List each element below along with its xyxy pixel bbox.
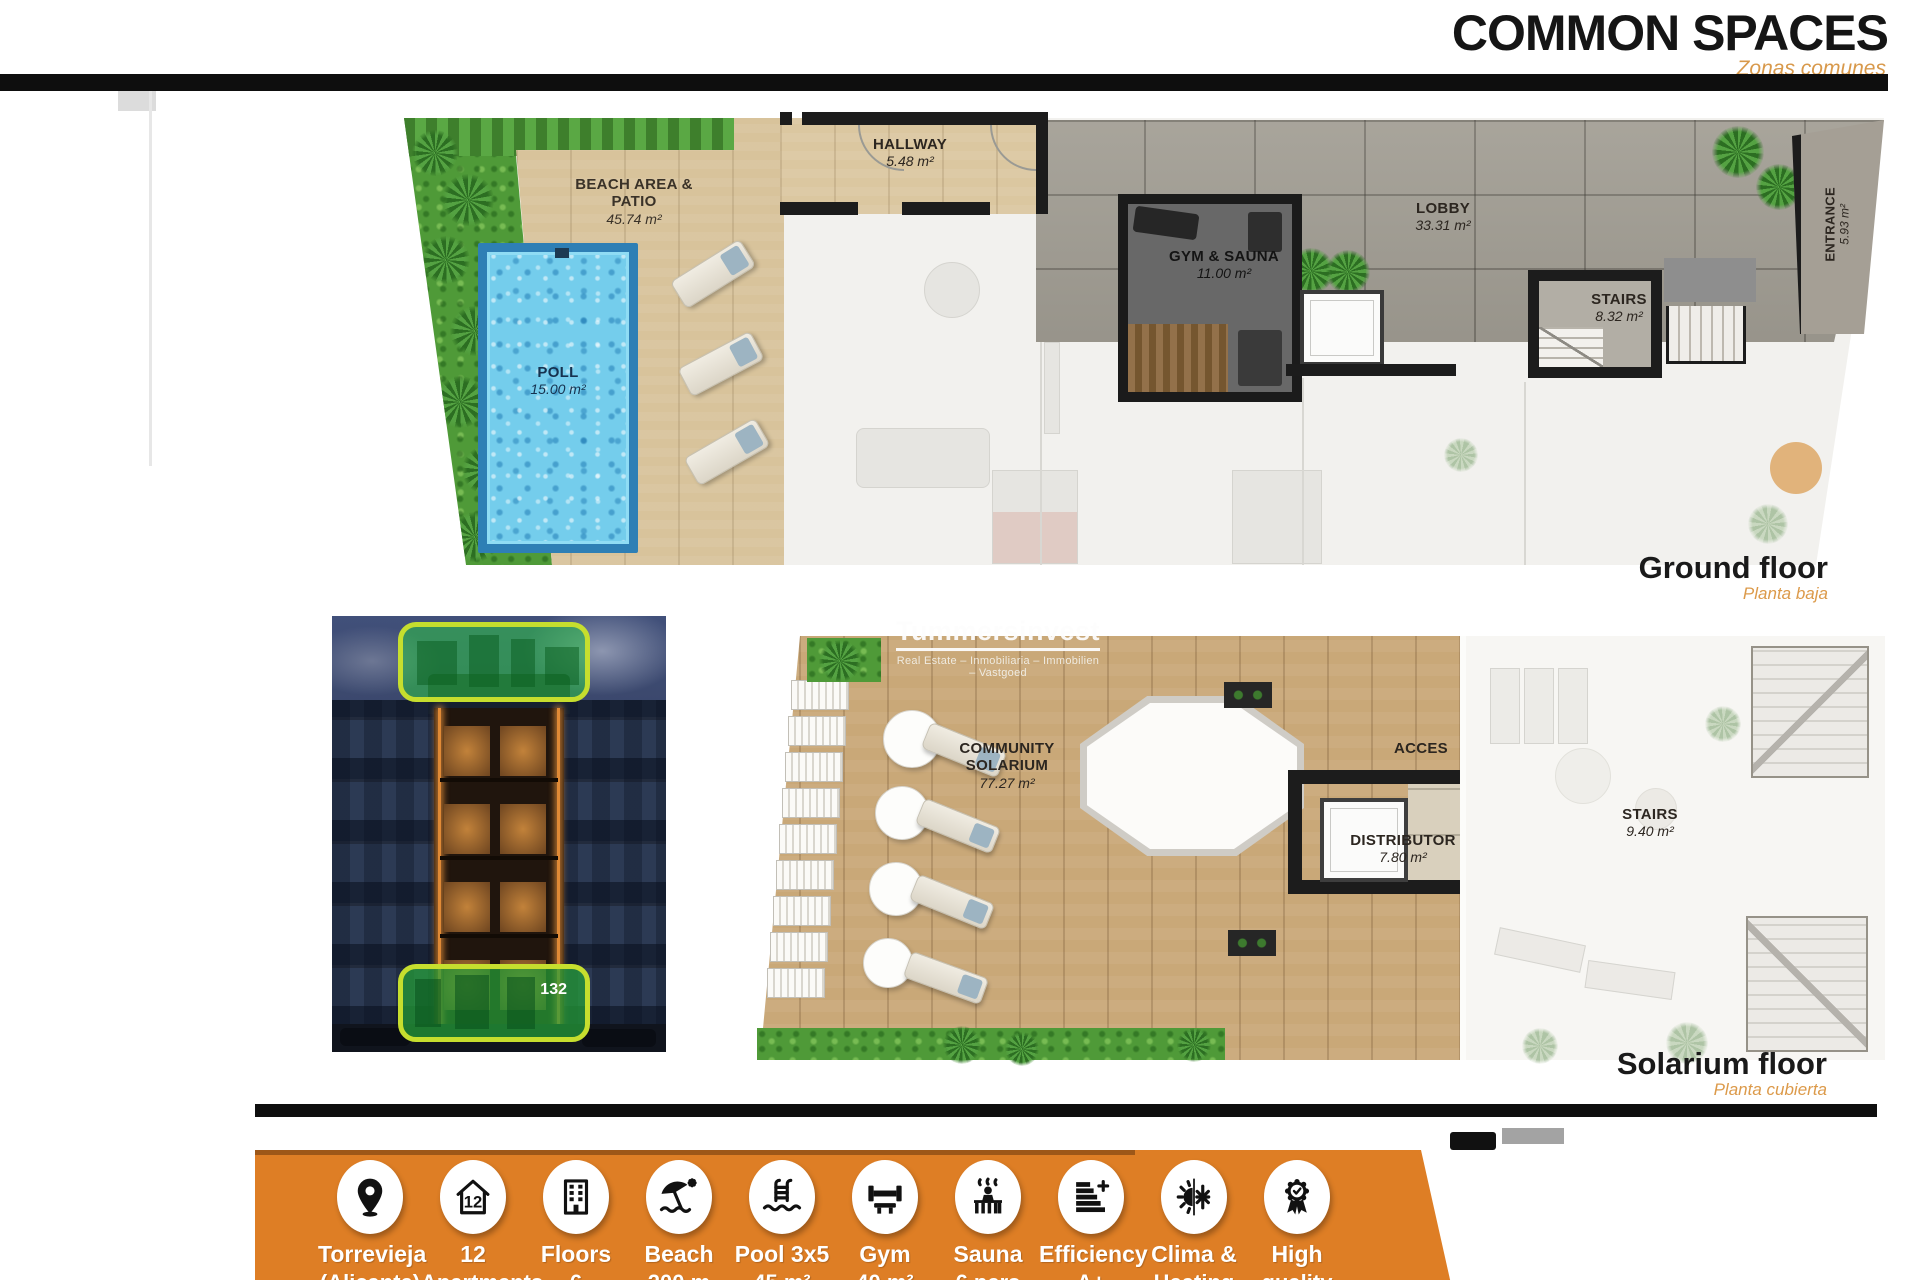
feature-line1: Efficiency (1039, 1241, 1143, 1268)
faded-lounger (1494, 927, 1586, 973)
room-area-lobby: 33.31 m² (1373, 217, 1513, 233)
swimming-pool: POLL 15.00 m² (478, 243, 638, 553)
feature-line2: A+ (1039, 1270, 1143, 1280)
feature-sauna: Sauna 6 pers (936, 1160, 1040, 1280)
ground-highlight-box: 132 (398, 964, 590, 1042)
room-area-beach: 45.74 m² (554, 211, 714, 227)
planter-box (1228, 930, 1276, 956)
location-pin-icon (337, 1160, 403, 1234)
slatted-lounger (788, 716, 846, 746)
highlight-silhouette (415, 979, 441, 1027)
slatted-lounger (791, 680, 849, 710)
feature-line1: Clima & (1142, 1241, 1246, 1268)
feature-gym: Gym 40 m² (833, 1160, 937, 1280)
lit-window (444, 882, 490, 932)
feature-line1: Sauna (936, 1241, 1040, 1268)
solarium-floor-plan: COMMUNITY SOLARIUM 77.27 m² ACCES DISTRI… (755, 628, 1888, 1068)
ground-floor-caption-es: Planta baja (1639, 583, 1828, 605)
skylight-glass (1087, 703, 1297, 849)
palm-plant (442, 174, 494, 226)
room-area-pool: 15.00 m² (487, 381, 629, 397)
feature-line1: 12 (421, 1241, 525, 1268)
faded-plant (1444, 438, 1478, 472)
floors-icon (543, 1160, 609, 1234)
room-name-beach: BEACH AREA & PATIO (554, 176, 714, 211)
watermark: Tummersinvest Real Estate – Inmobiliaria… (893, 616, 1103, 679)
lit-window (500, 804, 546, 854)
room-name-stairs-g: STAIRS (1569, 291, 1669, 308)
room-name-stairs-s: STAIRS (1595, 806, 1705, 823)
plant (1177, 1028, 1211, 1062)
feature-quality: High quality (1245, 1160, 1349, 1280)
bar-top-edge (255, 1150, 1135, 1155)
feature-line2: quality (1245, 1270, 1349, 1280)
feature-line2: Apartments (421, 1270, 525, 1280)
cropped-graphic (1450, 1132, 1496, 1150)
bed-blanket (993, 512, 1077, 563)
elevator (1300, 290, 1384, 366)
faded-plant (1705, 706, 1741, 742)
room-name-gym: GYM & SAUNA (1154, 248, 1294, 265)
room-name-entrance: ENTRANCE (1824, 144, 1839, 304)
header-rule (0, 74, 1888, 91)
plant (1005, 1032, 1039, 1066)
room-area-hallway: 5.48 m² (840, 153, 980, 169)
grass-strip (757, 1028, 1225, 1060)
pool-ladder (555, 248, 569, 258)
feature-line2: 6 (524, 1270, 628, 1280)
lit-window (500, 726, 546, 776)
faded-umbrella (1555, 748, 1611, 804)
balcony-slab (440, 934, 558, 938)
faded-table (924, 262, 980, 318)
stairs-room: STAIRS 8.32 m² (1528, 270, 1662, 378)
wall (1288, 770, 1302, 894)
gym-equipment (1238, 330, 1282, 386)
feature-line2: 6 pers (936, 1270, 1040, 1280)
faded-bed (992, 470, 1078, 564)
lit-window (500, 882, 546, 932)
feature-line1: Torrevieja (318, 1241, 422, 1268)
wall (780, 202, 858, 215)
entrance-area: ENTRANCE 5.93 m² (1792, 120, 1884, 334)
street-number-badge: 132 (540, 981, 567, 999)
umbrella (863, 938, 913, 988)
solarium-floor-caption-es: Planta cubierta (1617, 1079, 1827, 1101)
feature-line2: 200 m (627, 1270, 731, 1280)
watermark-tagline: Real Estate – Inmobiliaria – Immobilien … (893, 655, 1103, 679)
quality-icon (1264, 1160, 1330, 1234)
building-photo: 132 (332, 616, 666, 1052)
room-area-entrance: 5.93 m² (1839, 144, 1853, 304)
faded-wardrobe (1044, 342, 1060, 434)
stair-treads (1666, 306, 1746, 364)
highlight-silhouette (507, 977, 535, 1029)
lit-window (444, 804, 490, 854)
room-area-solarium: 77.27 m² (927, 775, 1087, 791)
wall (1286, 364, 1456, 376)
room-name-pool: POLL (487, 364, 629, 381)
feature-line1: Beach (627, 1241, 731, 1268)
feature-line2: Heating (1142, 1270, 1246, 1280)
feature-line2: (Alicante) (318, 1270, 422, 1280)
solarium-floor-caption: Solarium floor Planta cubierta (1617, 1048, 1827, 1101)
feature-location: Torrevieja (Alicante) (318, 1160, 422, 1280)
faded-lounger (1584, 960, 1675, 1000)
stair-treads (1539, 327, 1603, 367)
feature-efficiency: Efficiency A+ (1039, 1160, 1143, 1280)
wall (1036, 112, 1048, 214)
balcony-slab (440, 856, 558, 860)
room-name-solarium-1: COMMUNITY (927, 740, 1087, 757)
faded-stairs (1746, 916, 1868, 1052)
faded-wall-line (1302, 378, 1304, 565)
highlight-silhouette (455, 975, 489, 1029)
plant (819, 640, 861, 682)
feature-climate: Clima & Heating (1142, 1160, 1246, 1280)
feature-line1: High (1245, 1241, 1349, 1268)
gym-equipment (1133, 206, 1200, 241)
balcony-slab (440, 778, 558, 782)
slatted-lounger (776, 860, 834, 890)
solarium-highlight-box (398, 622, 590, 702)
svg-text:12: 12 (464, 1193, 482, 1212)
highlight-silhouette (545, 647, 579, 685)
wall (902, 202, 990, 215)
terrace-plant (1748, 504, 1788, 544)
sauna-icon (955, 1160, 1021, 1234)
features-bar: Torrevieja (Alicante) 12 12 Apartments F… (255, 1150, 1455, 1280)
planter-box (1224, 682, 1272, 708)
plant (943, 1026, 981, 1064)
feature-floors: Floors 6 (524, 1160, 628, 1280)
faded-terrace (1466, 636, 1885, 1060)
climate-icon (1161, 1160, 1227, 1234)
gym-equipment (1248, 212, 1282, 252)
room-area-stairs-s: 9.40 m² (1595, 823, 1705, 839)
room-name-hallway: HALLWAY (840, 136, 980, 153)
faded-plant (1522, 1028, 1558, 1064)
feature-apartments: 12 12 Apartments (421, 1160, 525, 1280)
feature-pool: Pool 3x5 45 m² (730, 1160, 834, 1280)
slatted-lounger (782, 788, 840, 818)
ground-floor-plan: BEACH AREA & PATIO 45.74 m² POLL 15.00 m… (404, 112, 1888, 570)
gym-icon (852, 1160, 918, 1234)
faded-stairs (1751, 646, 1869, 778)
highlight-silhouette (417, 641, 457, 685)
faded-bed (1232, 470, 1322, 564)
slatted-lounger (767, 968, 825, 998)
lobby-plant (1326, 250, 1370, 294)
landing-slab (1664, 258, 1756, 302)
solarium-floor-caption-en: Solarium floor (1617, 1048, 1827, 1079)
palm-plant (422, 236, 470, 284)
brochure-page: COMMON SPACES Zonas comunes BEACH AREA &… (0, 0, 1920, 1280)
slatted-lounger (773, 896, 831, 926)
room-name-solarium-2: SOLARIUM (927, 757, 1087, 774)
sauna-bench (1128, 324, 1228, 392)
lit-window (444, 726, 490, 776)
page-title: COMMON SPACES (1452, 4, 1888, 62)
ground-floor-caption-en: Ground floor (1639, 552, 1828, 583)
car (582, 1029, 656, 1047)
ground-floor-caption: Ground floor Planta baja (1639, 552, 1828, 605)
lobby-plant (1712, 126, 1764, 178)
slatted-lounger (785, 752, 843, 782)
wall (780, 112, 792, 125)
gym-sauna-room: GYM & SAUNA 11.00 m² (1118, 194, 1302, 402)
efficiency-icon (1058, 1160, 1124, 1234)
highlight-silhouette (469, 635, 499, 687)
highlight-silhouette (511, 639, 535, 687)
terrace-table (1770, 442, 1822, 494)
wall (802, 112, 1036, 125)
room-name-acces: ACCES (1385, 740, 1457, 757)
faded-lounger (1490, 668, 1520, 744)
watermark-brand: Tummersinvest (896, 616, 1100, 651)
feature-line1: Floors (524, 1241, 628, 1268)
room-area-gym: 11.00 m² (1154, 265, 1294, 281)
pool-icon (749, 1160, 815, 1234)
feature-line1: Pool 3x5 (730, 1241, 834, 1268)
footer-rule (255, 1104, 1877, 1117)
feature-line2: 40 m² (833, 1270, 937, 1280)
beach-icon (646, 1160, 712, 1234)
feature-line1: Gym (833, 1241, 937, 1268)
faded-wall-line (1524, 382, 1526, 565)
faded-lounger (1524, 668, 1554, 744)
apartments-count-icon: 12 (440, 1160, 506, 1234)
room-name-lobby: LOBBY (1373, 200, 1513, 217)
room-name-distributor: DISTRIBUTOR (1333, 832, 1473, 849)
slatted-lounger (779, 824, 837, 854)
feature-line2: 45 m² (730, 1270, 834, 1280)
cropped-graphic (1502, 1128, 1564, 1144)
elevator-cab (1310, 300, 1374, 356)
palm-plant (412, 130, 458, 176)
faded-lounger (1558, 668, 1588, 744)
scan-edge-line (149, 91, 152, 466)
slatted-lounger (770, 932, 828, 962)
room-area-stairs-g: 8.32 m² (1569, 308, 1669, 324)
room-area-distributor: 7.80 m² (1333, 849, 1473, 865)
faded-sofa (856, 428, 990, 488)
feature-beach: Beach 200 m (627, 1160, 731, 1280)
